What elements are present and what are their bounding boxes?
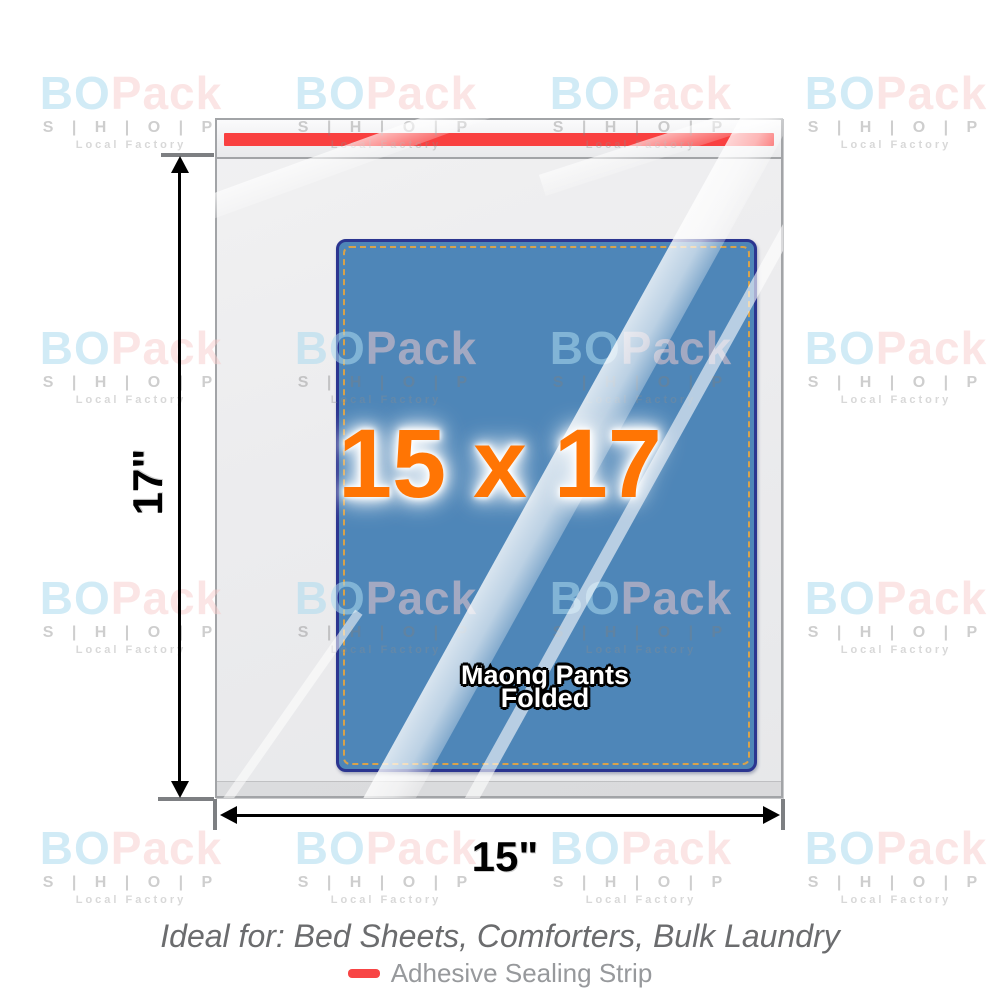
width-dimension-line	[227, 814, 773, 817]
ideal-for-caption: Ideal for: Bed Sheets, Comforters, Bulk …	[0, 918, 1000, 955]
product-illustration: BOPackS | H | O | PLocal FactoryBOPackS …	[0, 0, 1000, 1000]
bag-size-text: 15 x 17	[325, 408, 675, 520]
arrowhead-up-icon	[171, 156, 189, 173]
bag-bottom-seam	[217, 781, 781, 796]
dimension-tick	[781, 799, 785, 830]
legend: Adhesive Sealing Strip	[0, 958, 1000, 989]
arrowhead-down-icon	[171, 781, 189, 798]
watermark: BOPackS | H | O | PLocal Factory	[766, 70, 1000, 151]
watermark: BOPackS | H | O | PLocal Factory	[766, 325, 1000, 406]
height-dimension-line	[178, 160, 181, 794]
arrowhead-left-icon	[220, 806, 237, 824]
contents-label-line2: Folded	[501, 683, 590, 713]
watermark: BOPackS | H | O | PLocal Factory	[766, 575, 1000, 656]
adhesive-seal-strip	[224, 133, 774, 146]
watermark: BOPackS | H | O | PLocal Factory	[1, 825, 261, 906]
legend-label: Adhesive Sealing Strip	[391, 958, 653, 989]
width-dimension-label: 15"	[400, 833, 610, 881]
bag-flap	[217, 120, 781, 159]
seal-strip-swatch	[348, 969, 380, 978]
contents-label: ▲▲ Maong Pants Folded	[445, 664, 645, 710]
arrowhead-right-icon	[763, 806, 780, 824]
content-marks-icon: ▲▲	[475, 654, 497, 677]
height-dimension-label: 17"	[124, 432, 172, 532]
dimension-tick	[213, 799, 217, 830]
watermark: BOPackS | H | O | PLocal Factory	[766, 825, 1000, 906]
